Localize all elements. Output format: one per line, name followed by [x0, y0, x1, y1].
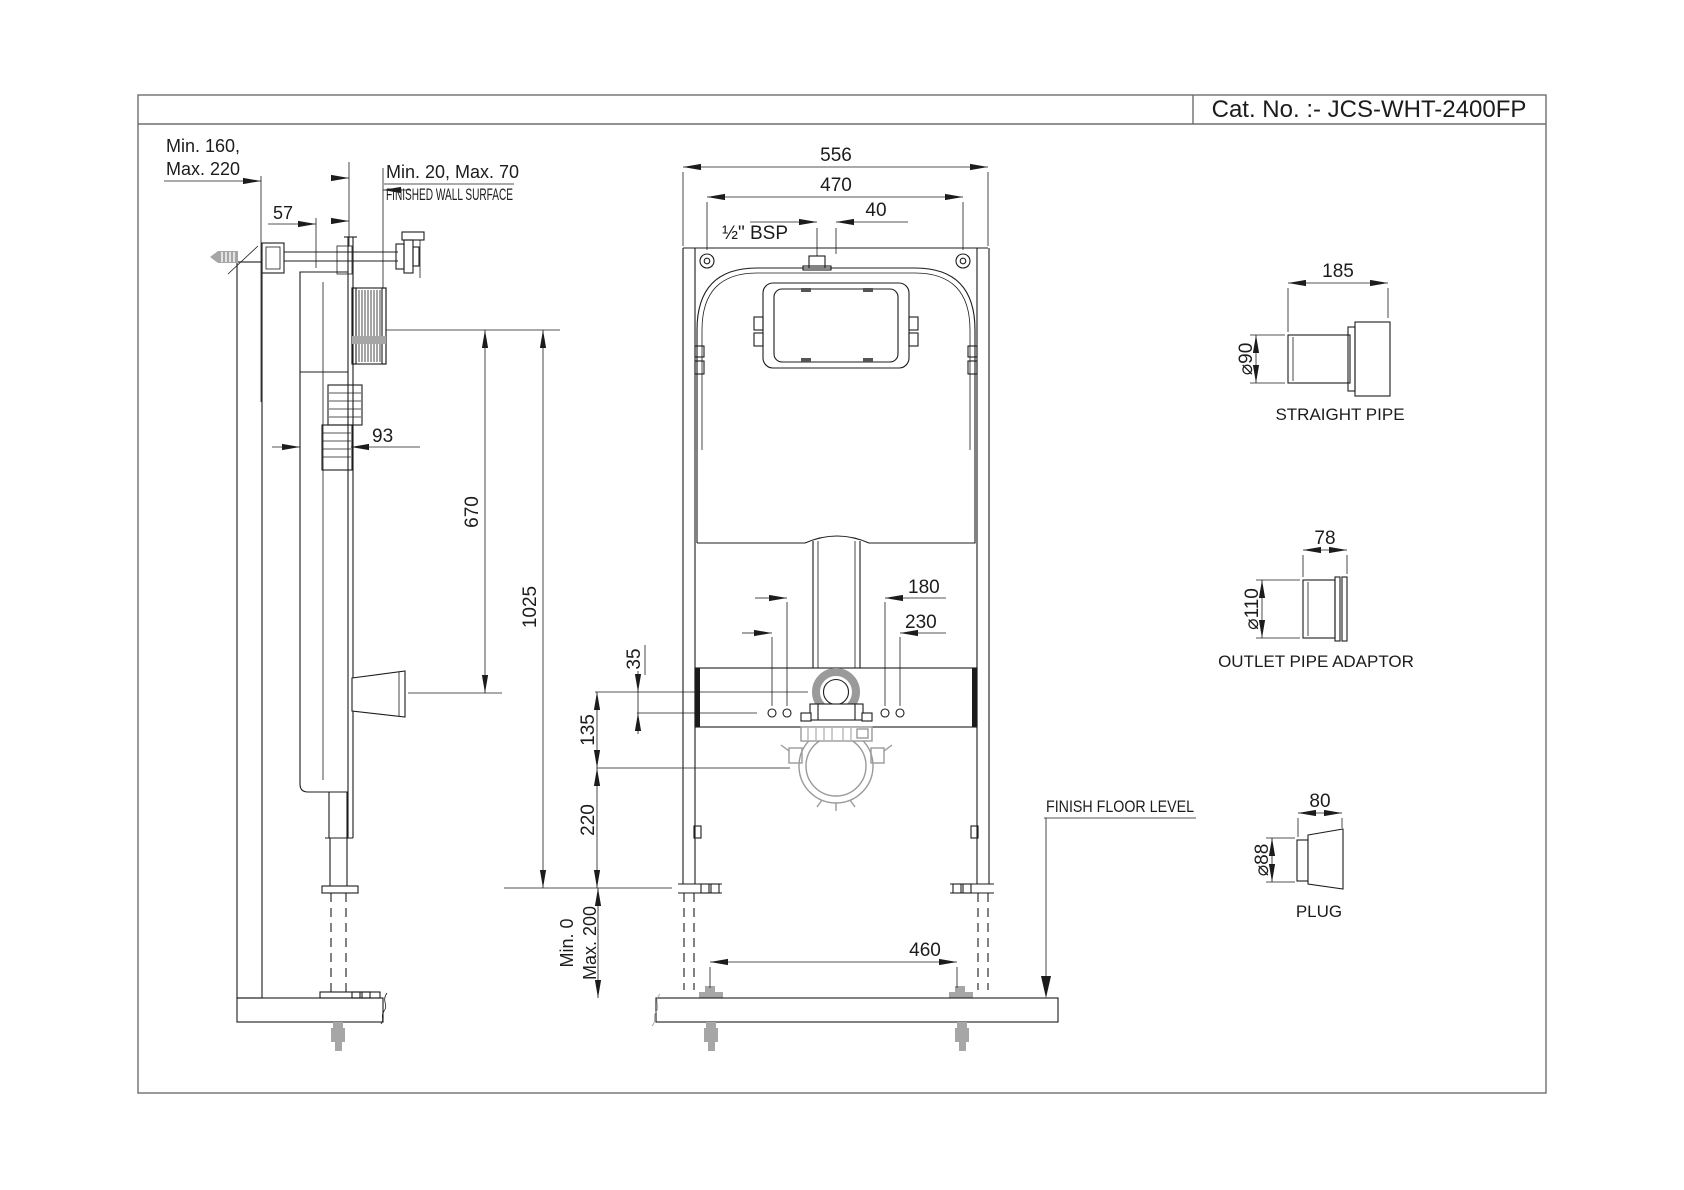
wall-anchor-bolt — [210, 251, 238, 263]
dim-670: 670 — [462, 330, 485, 693]
floor-section — [237, 998, 383, 1022]
dim-text: 135 — [578, 714, 599, 746]
dim-text: ⌀90 — [1236, 343, 1257, 376]
accessory-straight-pipe: 185 ⌀90 STRAIGHT PIPE — [1236, 261, 1405, 424]
dim-text: 220 — [578, 804, 599, 836]
dim-text: 185 — [1322, 261, 1354, 282]
accessory-plug: 80 ⌀88 PLUG — [1252, 791, 1343, 921]
catalog-number: Cat. No. :- JCS-WHT-2400FP — [1212, 96, 1527, 123]
frame-front — [683, 248, 989, 884]
dim-text: Max. 200 — [580, 906, 600, 980]
straight-pipe-label: STRAIGHT PIPE — [1275, 405, 1404, 424]
fixing-hole — [881, 709, 889, 717]
dim-text: 670 — [462, 496, 483, 528]
wall-bracket — [262, 232, 424, 278]
dim-text: 460 — [909, 940, 941, 961]
dim-dia90: ⌀90 — [1236, 335, 1285, 383]
finished-wall-strip — [337, 246, 352, 274]
outlet-clamp — [781, 727, 892, 811]
flush-plate-window — [754, 283, 918, 368]
dim-text: 93 — [372, 426, 393, 447]
dim-text: 40 — [865, 200, 886, 221]
plug-label: PLUG — [1296, 902, 1342, 921]
dim-text: 78 — [1314, 528, 1335, 549]
dim-text: ⌀110 — [1242, 588, 1263, 630]
dim-180: 180 — [755, 577, 946, 706]
dim-finish-gap: Min. 20, Max. 70 FINISHED WALL SURFACE — [331, 162, 519, 288]
wall-section — [237, 262, 262, 998]
dim-text: Max. 220 — [166, 159, 240, 179]
outlet-spigot-side — [352, 671, 405, 717]
dim-text: 80 — [1309, 791, 1330, 812]
dim-text: 230 — [905, 612, 937, 633]
fixing-hole — [896, 709, 904, 717]
drawing-sheet: Cat. No. :- JCS-WHT-2400FP — [0, 0, 1684, 1190]
dim-78: 78 — [1303, 528, 1347, 577]
dim-1025: 1025 — [520, 330, 543, 888]
dim-text: 1025 — [520, 586, 541, 628]
dim-text: ½" BSP — [722, 223, 788, 244]
corrugated-inlet-pipe — [352, 288, 386, 364]
frame-legs — [678, 826, 994, 998]
floor-level-label: FINISH FLOOR LEVEL — [1046, 797, 1194, 816]
fixing-hole — [768, 709, 776, 717]
floor-front — [652, 994, 1058, 1051]
dim-text: 470 — [820, 175, 852, 196]
corner-hole — [700, 254, 714, 268]
flush-pipe-ring — [801, 672, 872, 721]
dim-leg-adjust: Min. 0 Max. 200 — [557, 888, 600, 998]
dim-93: 93 — [272, 426, 420, 447]
cistern-front — [697, 256, 975, 668]
dim-text: 556 — [820, 145, 852, 166]
outlet-adaptor-label: OUTLET PIPE ADAPTOR — [1218, 652, 1414, 671]
dim-220: 220 — [578, 768, 599, 888]
leg-side — [320, 792, 380, 1051]
dim-text: 180 — [908, 577, 940, 598]
dim-dia88: ⌀88 — [1252, 838, 1295, 882]
dim-185: 185 — [1288, 261, 1388, 332]
fixing-hole — [783, 709, 791, 717]
dim-text: Min. 160, — [166, 136, 240, 156]
dim-57: 57 — [268, 203, 316, 268]
dim-35: 35 — [624, 645, 645, 734]
dim-wall-offset: Min. 160, Max. 220 — [164, 136, 261, 402]
front-view: 556 470 ½" BSP 40 180 — [557, 145, 1196, 1051]
dim-text: Min. 0 — [557, 918, 577, 967]
dim-text: 57 — [273, 203, 293, 223]
dim-460: 460 — [710, 940, 957, 988]
accessory-outlet-pipe-adaptor: 78 ⌀110 OUTLET PIPE ADAPTOR — [1218, 528, 1414, 671]
dim-dia110: ⌀110 — [1242, 580, 1300, 638]
dim-text: ⌀88 — [1252, 844, 1273, 877]
dim-text: Min. 20, Max. 70 — [386, 162, 519, 182]
frame-rail-side — [344, 237, 357, 838]
dim-text: 35 — [624, 648, 645, 669]
corner-hole — [956, 254, 970, 268]
floor-level-arrow — [1041, 976, 1051, 998]
finished-wall-label: FINISHED WALL SURFACE — [386, 185, 513, 204]
finish-floor-level: FINISH FLOOR LEVEL — [1041, 797, 1196, 998]
dim-135: 135 — [578, 692, 599, 768]
